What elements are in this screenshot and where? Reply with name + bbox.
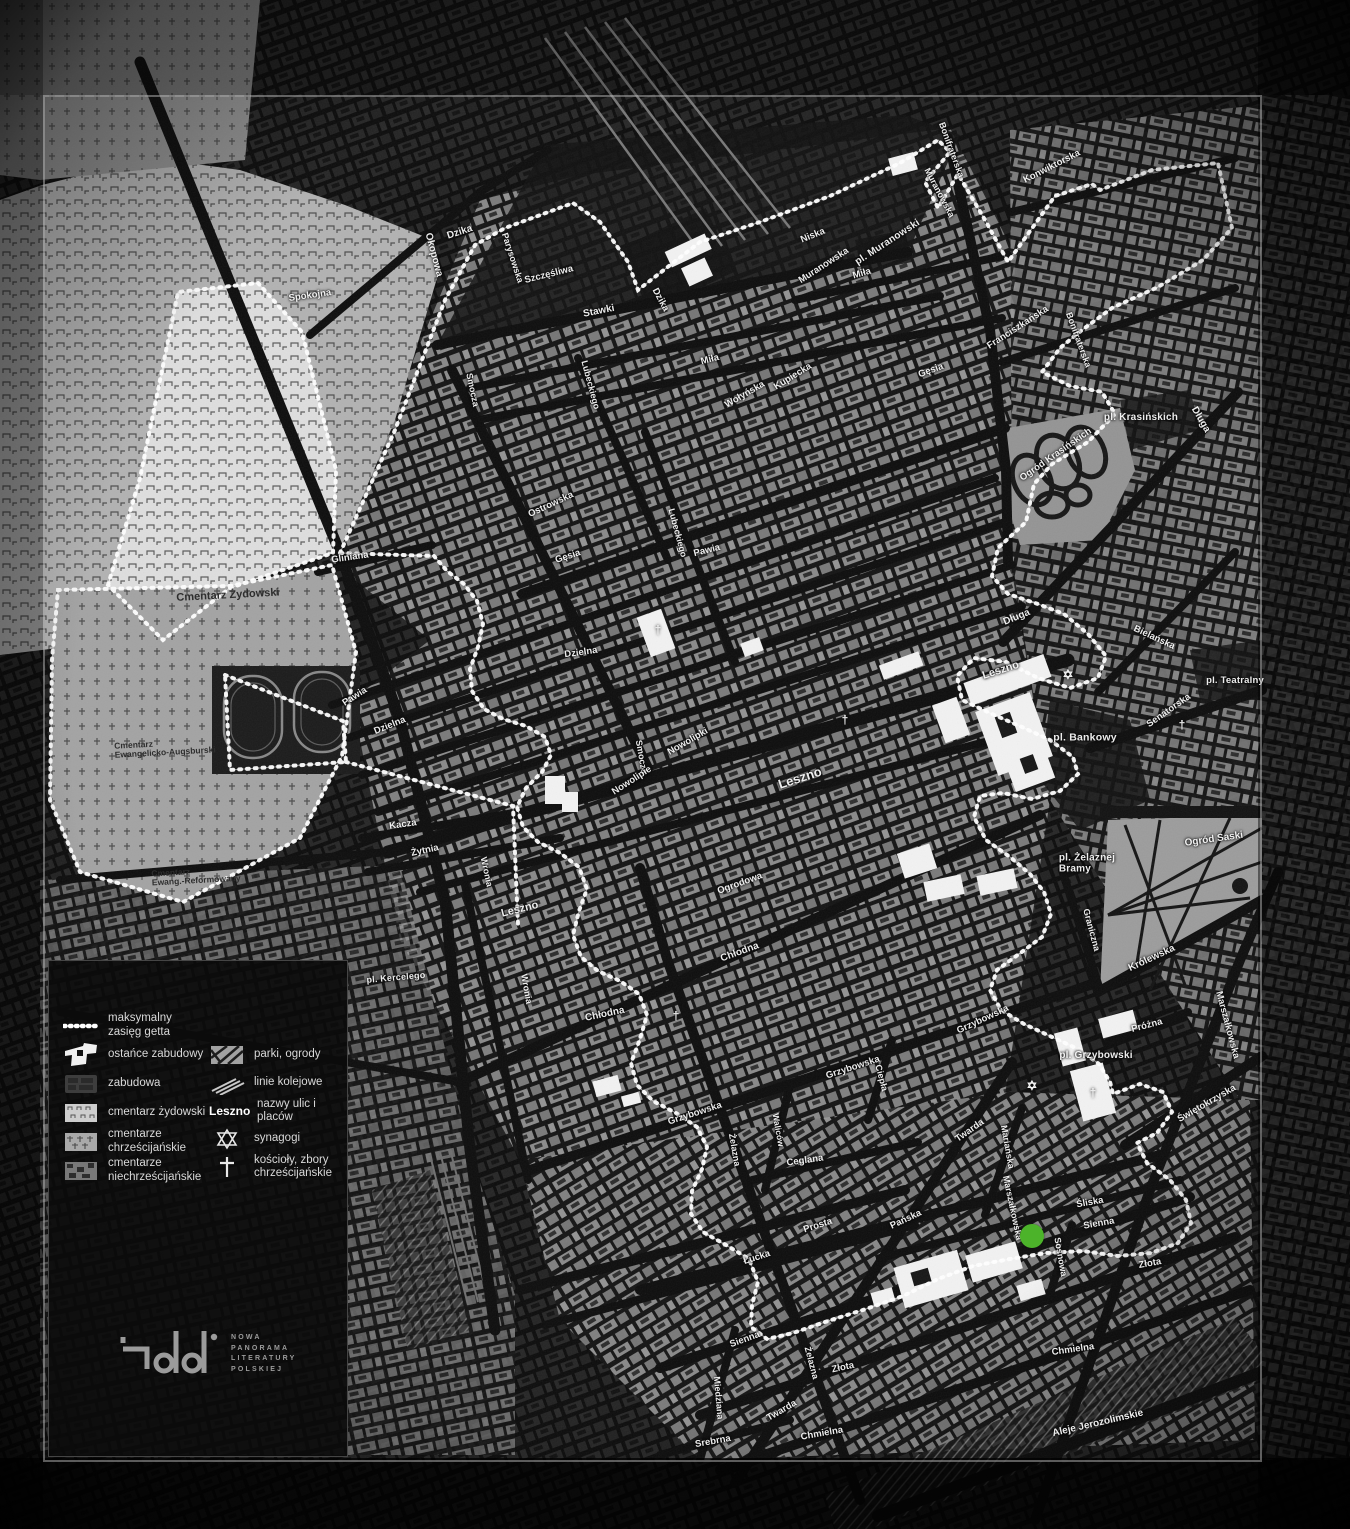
non-christian-cemeteries-icon bbox=[63, 1159, 99, 1183]
legend-label: cmentarze chrześcijańskie bbox=[108, 1128, 208, 1154]
legend-item: zabudowa bbox=[63, 1069, 208, 1098]
legend-label: maksymalny zasięg getta bbox=[108, 1012, 208, 1038]
logo-text-line: NOWA bbox=[231, 1333, 297, 1344]
legend-label: synagogi bbox=[254, 1132, 300, 1145]
remnant-buildings-icon bbox=[63, 1043, 99, 1067]
green-location-marker[interactable] bbox=[1020, 1224, 1044, 1248]
legend-item: cmentarze chrześcijańskie bbox=[63, 1127, 208, 1156]
legend-item: parki, ogrody bbox=[209, 1041, 341, 1069]
legend-label: parki, ogrody bbox=[254, 1048, 320, 1061]
legend-label: linie kolejowe bbox=[254, 1076, 322, 1089]
legend-label: nazwy ulic i placów bbox=[257, 1098, 341, 1124]
logo-text-line: POLSKIEJ bbox=[231, 1365, 297, 1376]
nplp-logo-glyph bbox=[119, 1327, 221, 1377]
synagogue-icon bbox=[209, 1127, 245, 1151]
buildings-icon bbox=[63, 1072, 99, 1096]
legend-item: kościoły, zbory chrześcijańskie bbox=[209, 1153, 341, 1181]
nplp-logo: NOWAPANORAMALITERATURYPOLSKIEJ bbox=[119, 1327, 297, 1377]
legend-item: ostańce zabudowy bbox=[63, 1040, 208, 1069]
legend-item: cmentarz żydowski bbox=[63, 1098, 208, 1127]
railways-icon bbox=[209, 1071, 245, 1095]
parks-icon bbox=[209, 1043, 245, 1067]
legend-label: cmentarze niechrześcijańskie bbox=[108, 1157, 208, 1183]
legend-item: linie kolejowe bbox=[209, 1069, 341, 1097]
warsaw-ghetto-map-screen: OkopowaDzikaSpokojnaParysowskaSzczęśliwa… bbox=[0, 0, 1350, 1529]
legend-column-2: parki, ogrodylinie kolejoweLesznonazwy u… bbox=[209, 1041, 341, 1181]
street-name-sample: Leszno bbox=[209, 1099, 251, 1123]
legend-item: maksymalny zasięg getta bbox=[63, 1011, 208, 1040]
logo-text-line: PANORAMA bbox=[231, 1344, 297, 1355]
legend-label: kościoły, zbory chrześcijańskie bbox=[254, 1154, 341, 1180]
legend-item: cmentarze niechrześcijańskie bbox=[63, 1156, 208, 1185]
christian-cemeteries-icon bbox=[63, 1130, 99, 1154]
legend-label: zabudowa bbox=[108, 1077, 160, 1090]
jewish-cemetery-icon bbox=[63, 1101, 99, 1125]
legend-label: ostańce zabudowy bbox=[108, 1048, 203, 1061]
legend-item: synagogi bbox=[209, 1125, 341, 1153]
legend-label: cmentarz żydowski bbox=[108, 1106, 205, 1119]
legend-column-1: maksymalny zasięg gettaostańce zabudowyz… bbox=[63, 1011, 208, 1185]
ghetto-extent-icon bbox=[63, 1014, 99, 1038]
logo-text-line: LITERATURY bbox=[231, 1354, 297, 1365]
nplp-logo-text: NOWAPANORAMALITERATURYPOLSKIEJ bbox=[231, 1333, 297, 1375]
church-icon bbox=[209, 1155, 245, 1179]
legend-panel: maksymalny zasięg gettaostańce zabudowyz… bbox=[48, 960, 348, 1457]
legend-item: Lesznonazwy ulic i placów bbox=[209, 1097, 341, 1125]
